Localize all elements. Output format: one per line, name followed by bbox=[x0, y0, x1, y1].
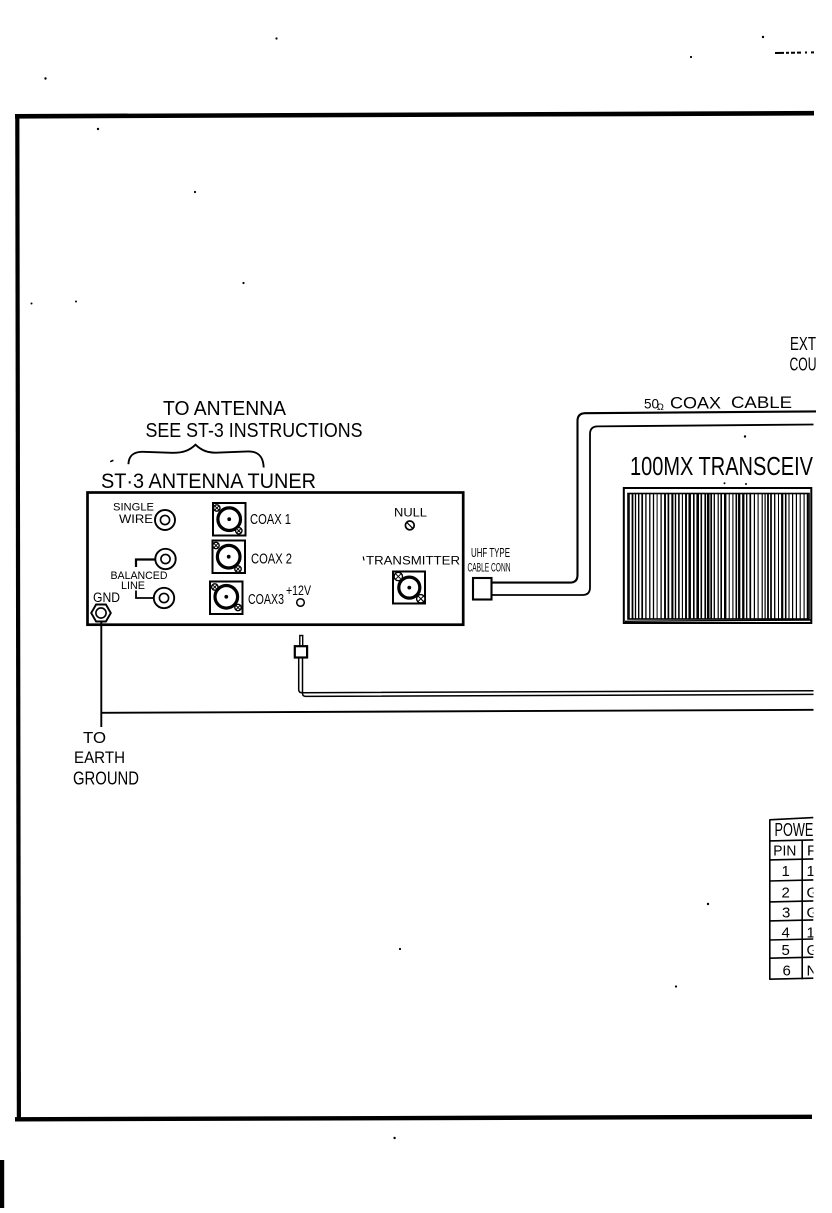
svg-text:1: 1 bbox=[782, 863, 790, 880]
svg-text:100MX TRANSCEIV: 100MX TRANSCEIV bbox=[630, 451, 814, 481]
svg-text:UHF TYPE: UHF TYPE bbox=[471, 545, 510, 560]
svg-text:COAX 2: COAX 2 bbox=[251, 552, 292, 568]
svg-text:COU: COU bbox=[790, 354, 817, 375]
svg-text:TO ANTENNA: TO ANTENNA bbox=[163, 398, 287, 420]
svg-text:COAX3: COAX3 bbox=[248, 592, 284, 608]
svg-text:2: 2 bbox=[782, 885, 790, 902]
svg-text:TRANSMITTER: TRANSMITTER bbox=[366, 554, 460, 568]
svg-text:EARTH: EARTH bbox=[74, 748, 125, 767]
svg-text:CABLE: CABLE bbox=[731, 393, 792, 412]
svg-text:GROUND: GROUND bbox=[73, 768, 139, 789]
svg-text:+12V: +12V bbox=[286, 583, 311, 598]
svg-text:SEE ST-3 INSTRUCTIONS: SEE ST-3 INSTRUCTIONS bbox=[146, 420, 363, 442]
svg-text:CABLE CONN: CABLE CONN bbox=[468, 561, 511, 575]
svg-text:COAX: COAX bbox=[670, 394, 721, 413]
svg-text:3: 3 bbox=[782, 905, 790, 922]
svg-text:TO: TO bbox=[83, 730, 106, 747]
svg-text:GND: GND bbox=[93, 590, 120, 605]
svg-text:PIN: PIN bbox=[773, 843, 796, 860]
svg-text:5: 5 bbox=[782, 942, 790, 959]
svg-text:NULL: NULL bbox=[394, 506, 427, 520]
svg-text:EXT: EXT bbox=[790, 333, 816, 354]
svg-text:ST·3 ANTENNA TUNER: ST·3 ANTENNA TUNER bbox=[101, 470, 316, 493]
svg-text:6: 6 bbox=[783, 963, 791, 980]
svg-text:Ω: Ω bbox=[657, 402, 664, 413]
svg-text:4: 4 bbox=[782, 925, 790, 942]
svg-text:COAX 1: COAX 1 bbox=[250, 512, 291, 528]
svg-text:WIRE: WIRE bbox=[119, 512, 153, 526]
svg-text:LINE: LINE bbox=[121, 580, 145, 592]
